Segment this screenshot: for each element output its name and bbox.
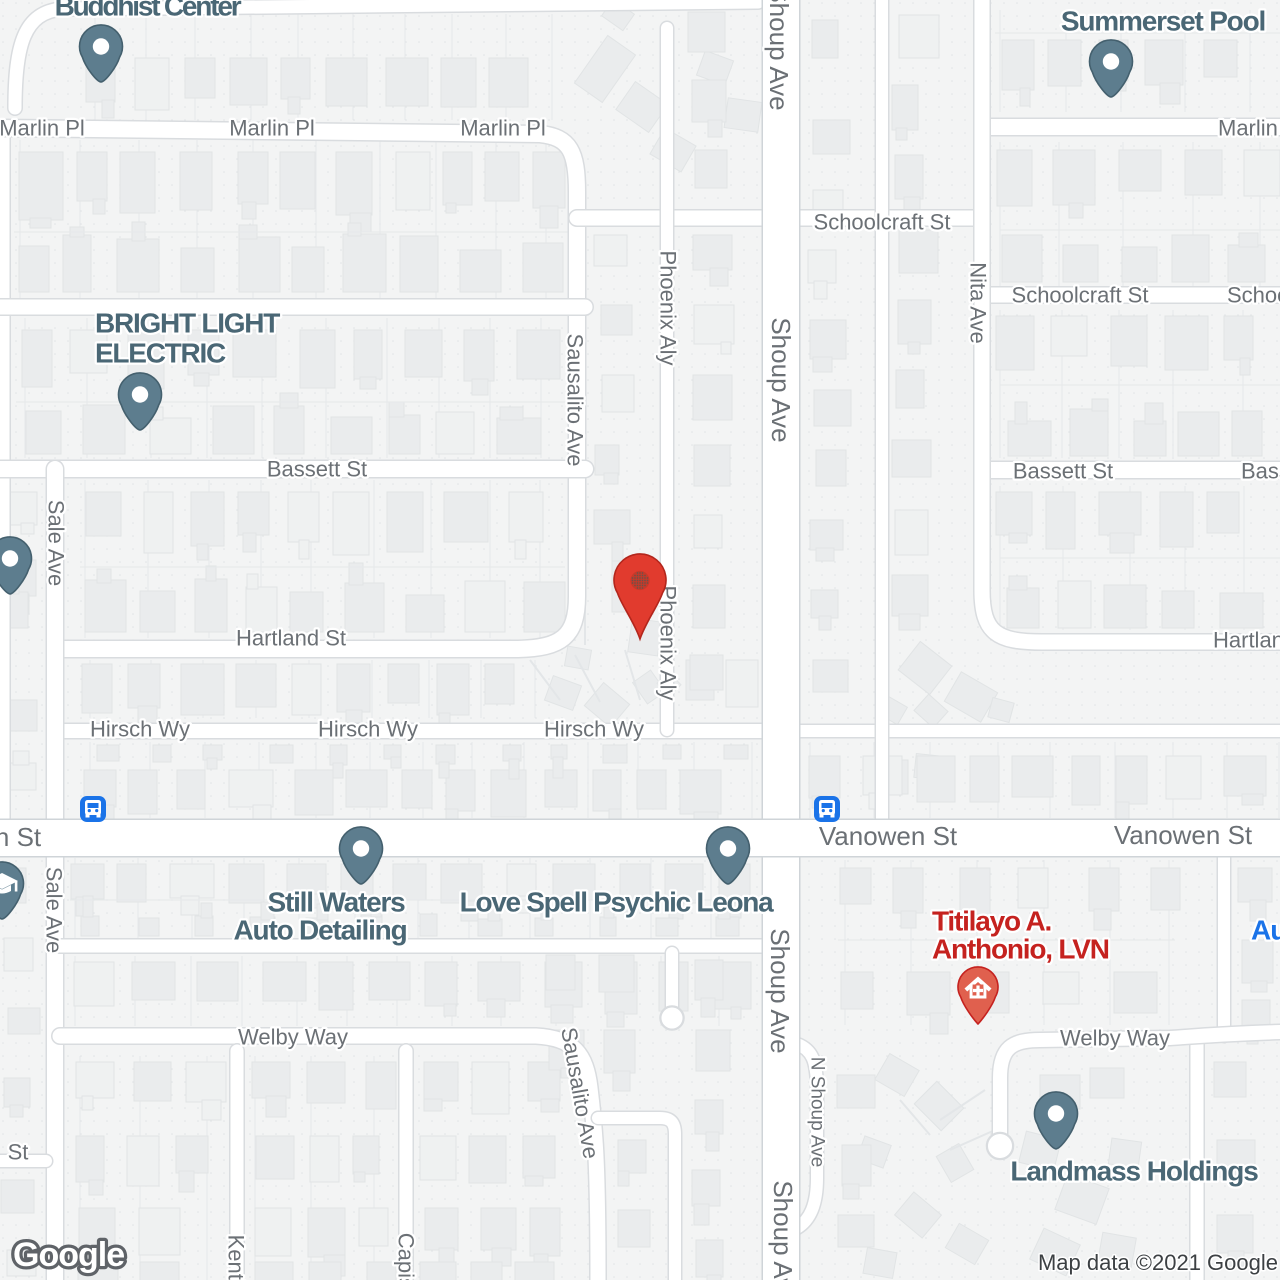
svg-text:Nita Ave: Nita Ave [966,262,991,344]
svg-text:Marlin Pl: Marlin Pl [1218,116,1280,141]
svg-text:Love Spell Psychic Leona: Love Spell Psychic Leona [460,887,774,918]
svg-text:Schoolcraft St: Schoolcraft St [1012,283,1149,308]
svg-text:Anthonio, LVN: Anthonio, LVN [932,934,1109,965]
svg-text:Hirsch Wy: Hirsch Wy [90,717,190,742]
svg-text:Vanowen St: Vanowen St [0,822,42,852]
svg-text:Phoenix Aly: Phoenix Aly [656,586,681,701]
svg-text:Shoup Ave: Shoup Ave [768,1180,798,1280]
svg-text:Hartland St: Hartland St [1213,628,1280,653]
svg-text:Still Waters: Still Waters [267,887,405,918]
svg-text:Google: Google [13,1236,124,1274]
svg-text:Auto Detailing: Auto Detailing [234,915,407,946]
svg-text:Buddhist Center: Buddhist Center [55,0,242,22]
svg-text:Kentland: Kentland [224,1235,249,1280]
svg-text:Bassett St: Bassett St [1013,459,1113,484]
svg-text:Titilayo A.: Titilayo A. [932,906,1051,937]
svg-text:Phoenix Aly: Phoenix Aly [656,251,681,366]
svg-text:Shoup Ave: Shoup Ave [765,928,795,1053]
svg-text:Summerset Pool: Summerset Pool [1061,6,1265,37]
svg-text:Auto: Auto [1251,915,1280,946]
svg-text:Shoup Ave: Shoup Ave [766,317,796,442]
svg-text:Welby Way: Welby Way [238,1025,348,1050]
svg-text:Schoolcraft St: Schoolcraft St [1227,283,1280,308]
svg-text:Sale Ave: Sale Ave [44,500,69,586]
svg-text:Hirsch Wy: Hirsch Wy [544,717,644,742]
svg-text:BRIGHT LIGHT: BRIGHT LIGHT [95,308,280,339]
svg-text:Marlin Pl: Marlin Pl [0,116,85,141]
svg-text:St: St [8,1140,29,1165]
svg-text:Marlin Pl: Marlin Pl [229,116,315,141]
svg-text:Landmass Holdings: Landmass Holdings [1010,1156,1258,1187]
svg-text:Sausalito Ave: Sausalito Ave [563,334,588,467]
svg-text:Shoup Ave: Shoup Ave [764,0,794,111]
svg-text:Vanowen St: Vanowen St [1114,820,1253,850]
svg-text:Bassett St: Bassett St [267,457,367,482]
svg-text:ELECTRIC: ELECTRIC [95,338,226,369]
svg-text:Sale Ave: Sale Ave [42,867,67,953]
svg-text:Map data ©2021 Google: Map data ©2021 Google [1038,1250,1278,1275]
svg-text:Bassett St: Bassett St [1241,459,1280,484]
svg-text:Welby Way: Welby Way [1060,1026,1170,1051]
svg-text:Vanowen St: Vanowen St [819,821,958,851]
svg-text:Hirsch Wy: Hirsch Wy [318,717,418,742]
svg-text:N Shoup Ave: N Shoup Ave [807,1057,828,1168]
svg-text:Marlin Pl: Marlin Pl [460,116,546,141]
svg-text:Hartland St: Hartland St [236,626,346,651]
svg-text:Schoolcraft St: Schoolcraft St [814,210,951,235]
svg-text:Capistrano: Capistrano [394,1233,419,1280]
